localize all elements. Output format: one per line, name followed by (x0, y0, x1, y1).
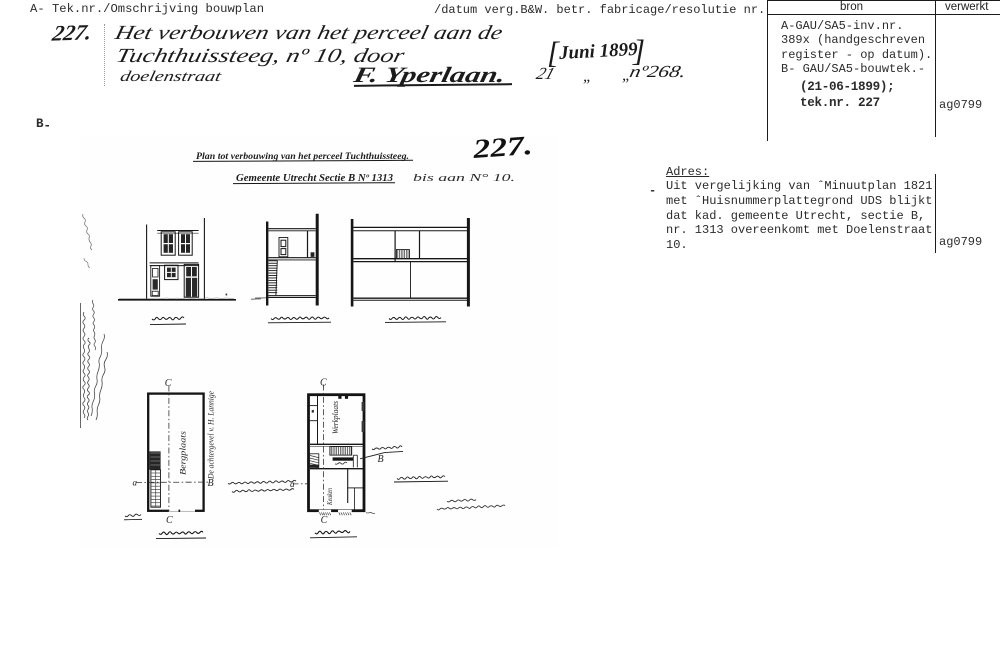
svg-text:De achtergevel v. H. Lannige: De achtergevel v. H. Lannige (206, 391, 216, 480)
svg-text:Werkplaats: Werkplaats (331, 401, 340, 434)
svg-text:Bergplaats: Bergplaats (178, 430, 188, 475)
svg-text:C: C (320, 378, 327, 389)
svg-text:B: B (378, 454, 384, 465)
svg-text:a: a (133, 478, 138, 488)
svg-text:Plan tot verbouwing van het pe: Plan tot verbouwing van het perceel Tuch… (196, 151, 409, 161)
svg-text:C: C (166, 515, 173, 526)
svg-text:227.: 227. (471, 130, 533, 164)
svg-text:bis aan N° 10.: bis aan N° 10. (413, 172, 515, 184)
svg-text:C: C (165, 378, 172, 389)
svg-text:Keuken: Keuken (325, 488, 334, 506)
svg-text:C: C (321, 515, 328, 526)
